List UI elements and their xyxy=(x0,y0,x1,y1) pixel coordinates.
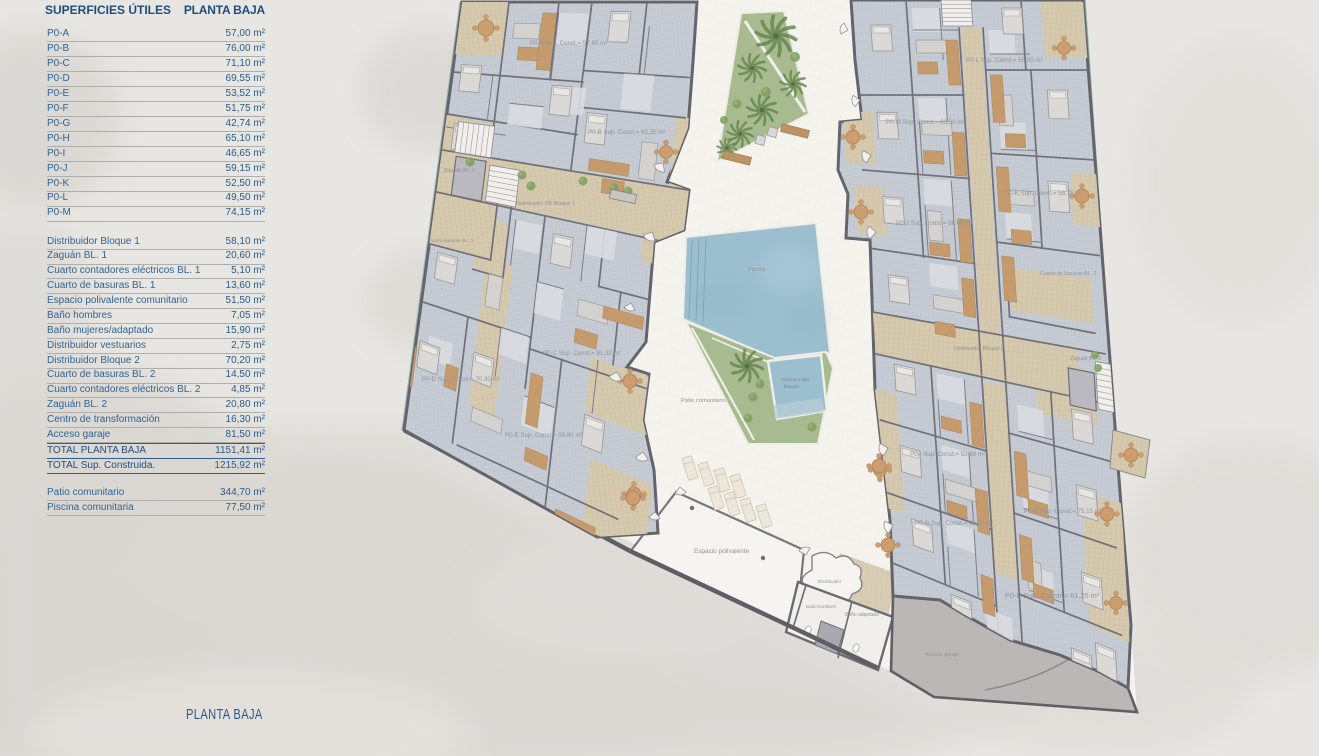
svg-text:Piscina sobre: Piscina sobre xyxy=(781,377,810,383)
svg-text:P0-H Sup. Const.= 75,15 m²: P0-H Sup. Const.= 75,15 m² xyxy=(1024,508,1102,515)
svg-text:Distribuidor: Distribuidor xyxy=(818,579,842,584)
svg-text:Patio comunitario: Patio comunitario xyxy=(681,398,726,404)
svg-text:Piscina: Piscina xyxy=(748,267,765,273)
svg-text:P0-D Sup. Const.= 70,90 m²: P0-D Sup. Const.= 70,90 m² xyxy=(422,376,500,383)
svg-text:llosado: llosado xyxy=(784,384,800,390)
svg-text:P0-G Sup. Const.= 49,82 m²: P0-G Sup. Const.= 49,82 m² xyxy=(915,520,993,527)
svg-text:Distribuidor Bloque 2: Distribuidor Bloque 2 xyxy=(954,346,1004,352)
svg-text:Baño hombres: Baño hombres xyxy=(806,604,837,609)
svg-text:P0-J Sup. Const.= 68,00 m²: P0-J Sup. Const.= 68,00 m² xyxy=(896,220,973,227)
svg-text:Baño adaptado: Baño adaptado xyxy=(845,612,879,618)
svg-text:Cuarto de basuras BL. 2: Cuarto de basuras BL. 2 xyxy=(1040,271,1096,277)
svg-text:P0-E Sup. Const.= 59,80 m²: P0-E Sup. Const.= 59,80 m² xyxy=(505,432,583,439)
svg-text:P0-K Sup. Const.= 58,75 m²: P0-K Sup. Const.= 58,75 m² xyxy=(1005,190,1083,197)
svg-text:P0-I Sup. Const.= 53,90 m²: P0-I Sup. Const.= 53,90 m² xyxy=(910,451,985,458)
svg-text:P0-F Sup. Constr.= 61,25 m²: P0-F Sup. Constr.= 61,25 m² xyxy=(1005,591,1100,600)
svg-text:P0-L Sup. Const.= 55,95 m²: P0-L Sup. Const.= 55,95 m² xyxy=(966,57,1043,64)
svg-text:Distribuidor PB Bloque 1: Distribuidor PB Bloque 1 xyxy=(516,201,575,207)
svg-text:Zaguán BL. 1: Zaguán BL. 1 xyxy=(444,168,475,174)
svg-text:P0-M Sup. Const.= 83,20 m²: P0-M Sup. Const.= 83,20 m² xyxy=(886,119,965,126)
svg-text:Espacio polivalente: Espacio polivalente xyxy=(694,548,750,555)
svg-text:P0-B Sup. Const.= 82,35 m²: P0-B Sup. Const.= 82,35 m² xyxy=(588,129,666,136)
svg-text:P0-A Sup. Const.= 57,65 m²: P0-A Sup. Const.= 57,65 m² xyxy=(530,40,607,47)
svg-text:Acceso garaje: Acceso garaje xyxy=(925,652,959,658)
svg-text:P0-C Sup. Const.= 81,32 m²: P0-C Sup. Const.= 81,32 m² xyxy=(543,350,621,357)
svg-text:Cuarto basuras BL. 1: Cuarto basuras BL. 1 xyxy=(428,238,474,244)
svg-text:Zaguán BL. 2: Zaguán BL. 2 xyxy=(1070,356,1101,362)
